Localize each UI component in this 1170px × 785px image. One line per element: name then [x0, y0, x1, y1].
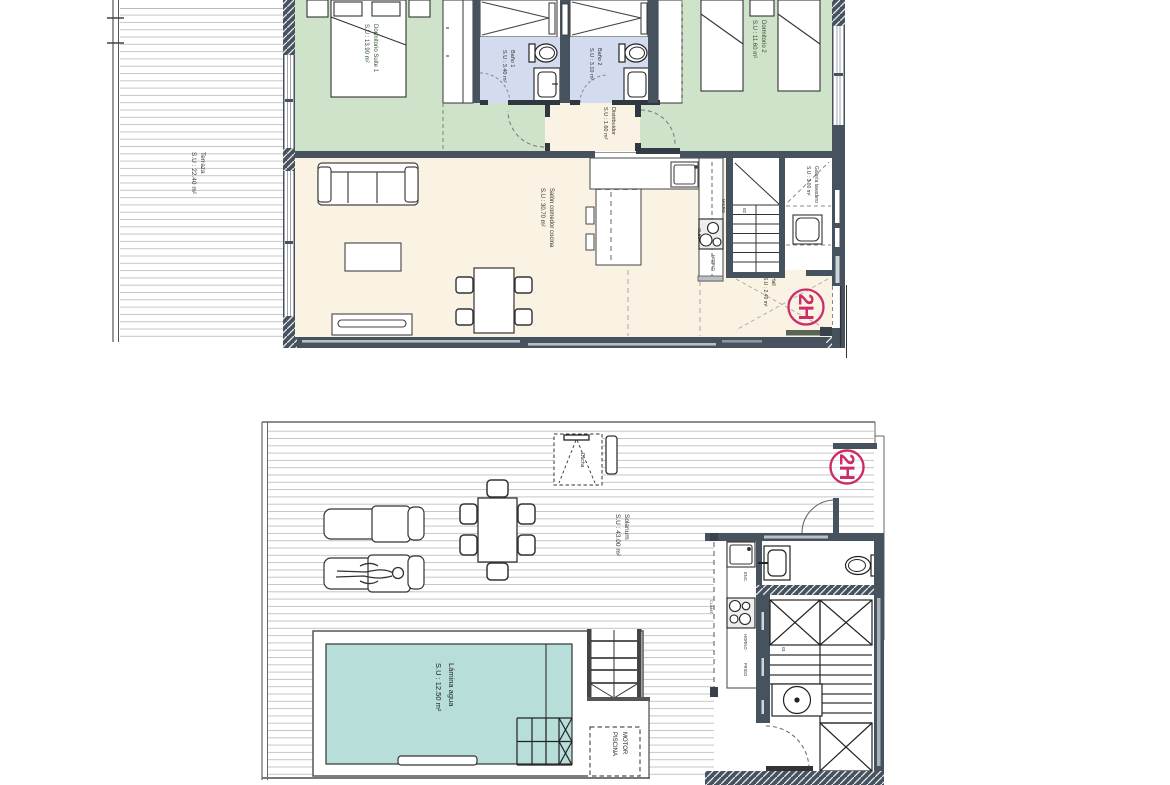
svg-text:Lámina agua: Lámina agua: [447, 663, 456, 707]
svg-text:Terraza: Terraza: [199, 152, 206, 174]
svg-text:Distribuidor: Distribuidor: [610, 107, 616, 135]
svg-text:S.U : 3.40 m²: S.U : 3.40 m²: [501, 50, 507, 83]
svg-text:S.U : 30.70 m²: S.U : 30.70 m²: [539, 188, 545, 227]
svg-text:S.U : 2.40 m²: S.U : 2.40 m²: [762, 277, 768, 307]
svg-text:MOTOR: MOTOR: [621, 732, 627, 755]
svg-text:MICRO: MICRO: [721, 199, 726, 214]
svg-text:PISCINA: PISCINA: [611, 732, 617, 756]
svg-text:01: 01: [781, 647, 786, 653]
svg-text:S.U : 3.00 m²: S.U : 3.00 m²: [805, 166, 811, 196]
svg-text:02: 02: [742, 208, 747, 214]
svg-text:S.U : 43.00 m²: S.U : 43.00 m²: [614, 514, 621, 557]
svg-text:2H: 2H: [835, 454, 858, 481]
svg-text:S.U : 11.60 m²: S.U : 11.60 m²: [751, 20, 757, 58]
svg-text:CLIMAT.: CLIMAT.: [709, 600, 713, 614]
svg-text:2H: 2H: [794, 294, 817, 321]
svg-text:Salón comedor cocina: Salón comedor cocina: [548, 188, 554, 248]
svg-text:Galería lavadero: Galería lavadero: [813, 166, 819, 203]
svg-text:Baño 2: Baño 2: [596, 48, 602, 65]
svg-text:OLEO: OLEO: [697, 228, 702, 240]
svg-text:Baño 1: Baño 1: [509, 50, 515, 67]
svg-text:HORNO: HORNO: [711, 255, 716, 271]
svg-text:S.U : 12.50 m²: S.U : 12.50 m²: [434, 663, 443, 712]
svg-text:S.U : 3.10 m²: S.U : 3.10 m²: [588, 48, 594, 81]
svg-text:Dormitorio Suite 1: Dormitorio Suite 1: [372, 24, 378, 73]
svg-text:HORNO: HORNO: [743, 634, 748, 650]
svg-text:Dormitorio 2: Dormitorio 2: [760, 20, 766, 53]
svg-text:FRIGO: FRIGO: [743, 663, 748, 677]
svg-text:Ducha: Ducha: [579, 453, 585, 468]
svg-text:S.U : 1.60 m²: S.U : 1.60 m²: [602, 107, 608, 140]
svg-text:S.U : 13.90 m²: S.U : 13.90 m²: [363, 24, 369, 63]
svg-text:Hall: Hall: [770, 277, 776, 286]
svg-text:Solarium: Solarium: [623, 514, 630, 540]
svg-text:S.U : 22.40 m²: S.U : 22.40 m²: [190, 152, 197, 195]
svg-text:ENC.: ENC.: [743, 572, 748, 582]
